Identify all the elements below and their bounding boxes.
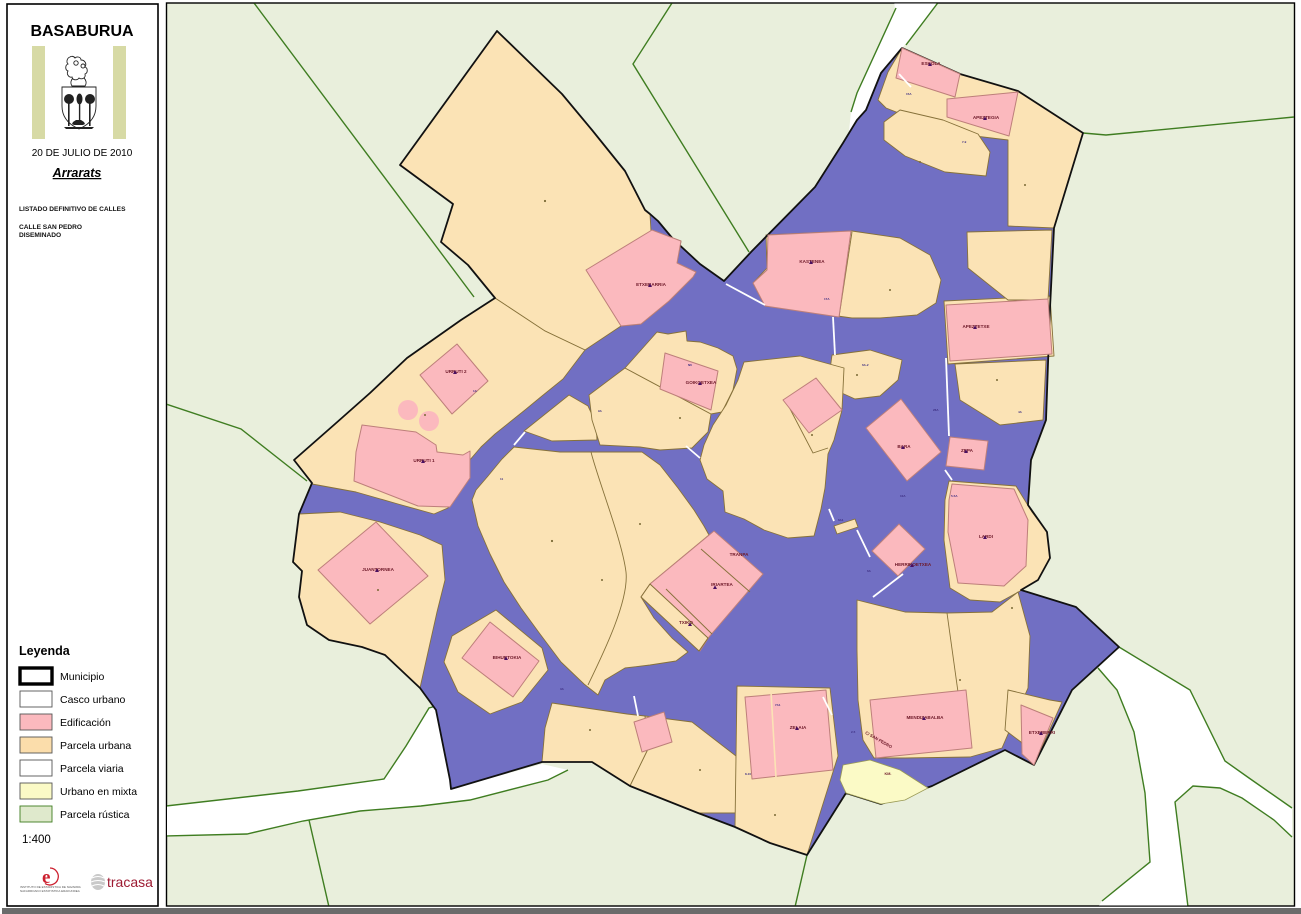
- svg-text:N6: N6: [688, 363, 692, 367]
- svg-text:LISTADO DEFINITIVO DE CALLES: LISTADO DEFINITIVO DE CALLES: [19, 206, 126, 213]
- svg-text:15A: 15A: [906, 92, 912, 96]
- svg-text:CALLE SAN PEDRO: CALLE SAN PEDRO: [19, 224, 82, 231]
- svg-text:1:400: 1:400: [22, 834, 51, 846]
- svg-text:Urbano en mixta: Urbano en mixta: [60, 786, 137, 798]
- svg-text:10A: 10A: [900, 494, 906, 498]
- svg-text:Parcela rústica: Parcela rústica: [60, 809, 130, 821]
- svg-text:Leyenda: Leyenda: [19, 644, 71, 658]
- svg-text:Parcela viaria: Parcela viaria: [60, 763, 124, 775]
- svg-text:5-5A: 5-5A: [951, 494, 958, 498]
- svg-text:17A: 17A: [824, 297, 830, 301]
- svg-text:7-9: 7-9: [962, 140, 967, 144]
- svg-text:TRANPA: TRANPA: [730, 552, 749, 557]
- svg-text:KM.: KM.: [885, 772, 892, 776]
- svg-text:tracasa: tracasa: [107, 874, 153, 890]
- svg-text:Arrarats: Arrarats: [52, 166, 102, 180]
- svg-text:Parcela urbana: Parcela urbana: [60, 740, 131, 752]
- svg-text:8-10: 8-10: [745, 772, 751, 776]
- svg-text:6A-2: 6A-2: [862, 363, 869, 367]
- svg-text:Municipio: Municipio: [60, 671, 105, 683]
- svg-text:BASABURUA: BASABURUA: [30, 23, 134, 40]
- svg-text:20 DE JULIO DE 2010: 20 DE JULIO DE 2010: [32, 148, 133, 159]
- svg-text:Casco urbano: Casco urbano: [60, 694, 126, 706]
- svg-text:TXIKO: TXIKO: [679, 620, 693, 625]
- svg-text:2-5: 2-5: [851, 730, 856, 734]
- svg-text:DISEMINADO: DISEMINADO: [19, 232, 61, 239]
- svg-text:6A1: 6A1: [838, 518, 844, 522]
- svg-text:NAFARROAKO ESTATISTIKA ERAKUND: NAFARROAKO ESTATISTIKA ERAKUNDEA: [20, 889, 80, 893]
- svg-text:7A1: 7A1: [775, 703, 781, 707]
- svg-text:Edificación: Edificación: [60, 717, 111, 729]
- svg-text:IRIARTEA: IRIARTEA: [711, 582, 733, 587]
- svg-text:26A: 26A: [933, 408, 939, 412]
- svg-text:11: 11: [500, 477, 504, 481]
